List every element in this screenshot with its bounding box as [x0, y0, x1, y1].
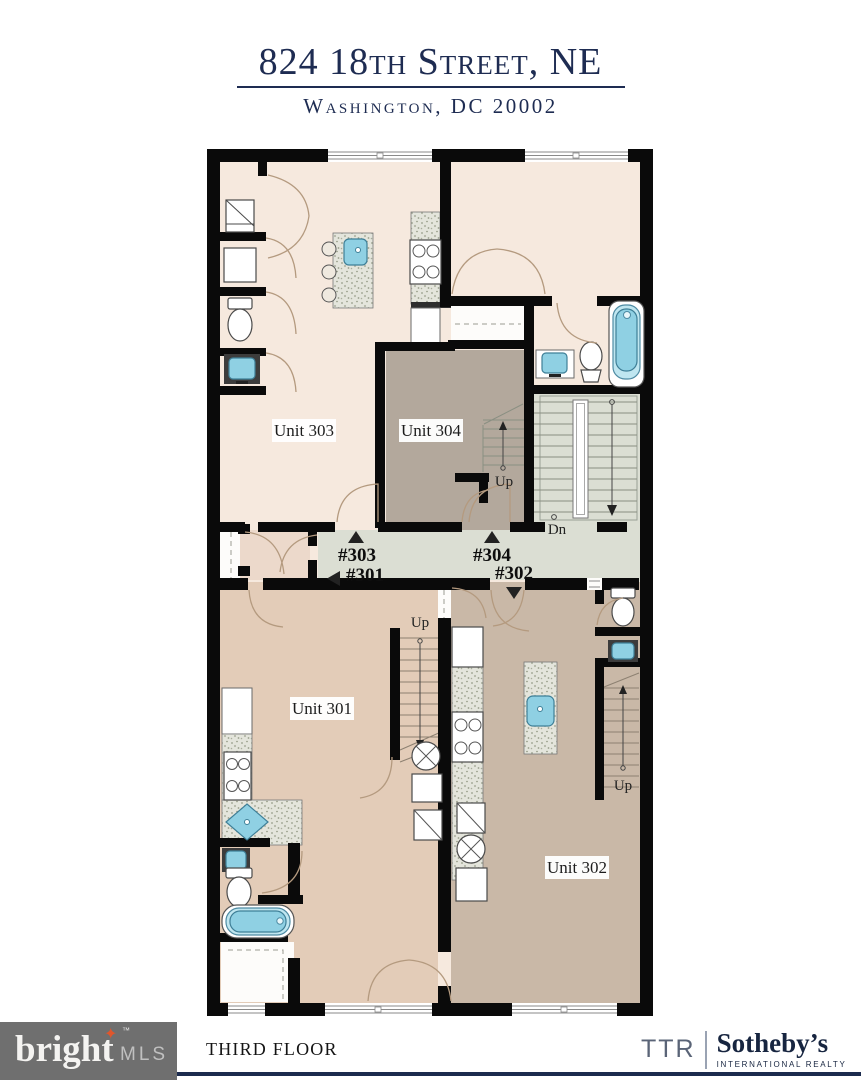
window — [525, 149, 628, 162]
unit-301-label: Unit 301 — [292, 699, 352, 718]
window — [328, 149, 432, 162]
bathtub-icon — [609, 301, 644, 387]
mls-logo-text: MLS — [120, 1044, 168, 1066]
down-label-stairwell: Dn — [548, 522, 567, 538]
washer-icon — [457, 835, 485, 863]
bottom-accent-bar — [177, 1072, 861, 1076]
hall-302-label: #302 — [495, 563, 533, 584]
up-label-301: Up — [411, 615, 429, 631]
up-label-304: Up — [495, 474, 513, 490]
cabinet-icon — [414, 810, 442, 840]
sothebys-tagline: INTERNATIONAL REALTY — [717, 1060, 847, 1069]
unit-303-label: Unit 303 — [274, 421, 334, 440]
trademark-symbol: ™ — [122, 1026, 130, 1035]
ttr-sothebys-logo: TTR Sotheby’s INTERNATIONAL REALTY — [641, 1030, 846, 1069]
bar-stool-icon — [322, 242, 336, 302]
sink-icon — [608, 640, 638, 662]
cabinet-icon — [457, 803, 485, 833]
stair-rail — [573, 400, 588, 518]
washer-icon — [412, 742, 440, 770]
kitchen-sink-icon — [527, 696, 554, 726]
up-label-302: Up — [614, 778, 632, 794]
hall-301-label: #301 — [346, 565, 384, 586]
kitchen-sink-icon — [344, 239, 367, 265]
window — [228, 1003, 265, 1016]
stove-icon — [452, 712, 483, 762]
floor-label: THIRD FLOOR — [206, 1039, 338, 1060]
toilet-icon — [580, 342, 602, 382]
window — [325, 1003, 432, 1016]
unit-304-label: Unit 304 — [401, 421, 461, 440]
bright-spark-icon: ✦ — [104, 1024, 117, 1044]
bright-logo-text: bright — [15, 1028, 114, 1071]
refrigerator-icon — [452, 627, 483, 667]
toilet-icon — [226, 868, 252, 907]
refrigerator-icon — [224, 248, 256, 282]
cased-opening — [587, 578, 602, 590]
sink-icon — [224, 354, 260, 384]
appliance-icon — [412, 774, 442, 802]
toilet-icon — [611, 588, 635, 626]
sink-icon — [542, 353, 567, 377]
stove-icon — [410, 240, 441, 284]
floor-plan: Unit 303 Unit 304 Unit 301 Unit 302 #303… — [0, 0, 861, 1080]
dishwasher-303 — [411, 308, 440, 346]
unit-302-label: Unit 302 — [547, 858, 607, 877]
window — [512, 1003, 617, 1016]
counter-white-301 — [222, 688, 252, 734]
toilet-icon — [228, 298, 252, 341]
stove-icon — [224, 752, 251, 800]
logo-divider — [705, 1031, 707, 1069]
hall-303-label: #303 — [338, 545, 376, 566]
bathtub-icon — [222, 905, 294, 938]
ttr-logo-text: TTR — [641, 1035, 696, 1064]
cabinet-icon — [226, 200, 254, 232]
appliance-icon — [456, 868, 487, 901]
sothebys-logo-text: Sotheby’s — [717, 1030, 847, 1057]
